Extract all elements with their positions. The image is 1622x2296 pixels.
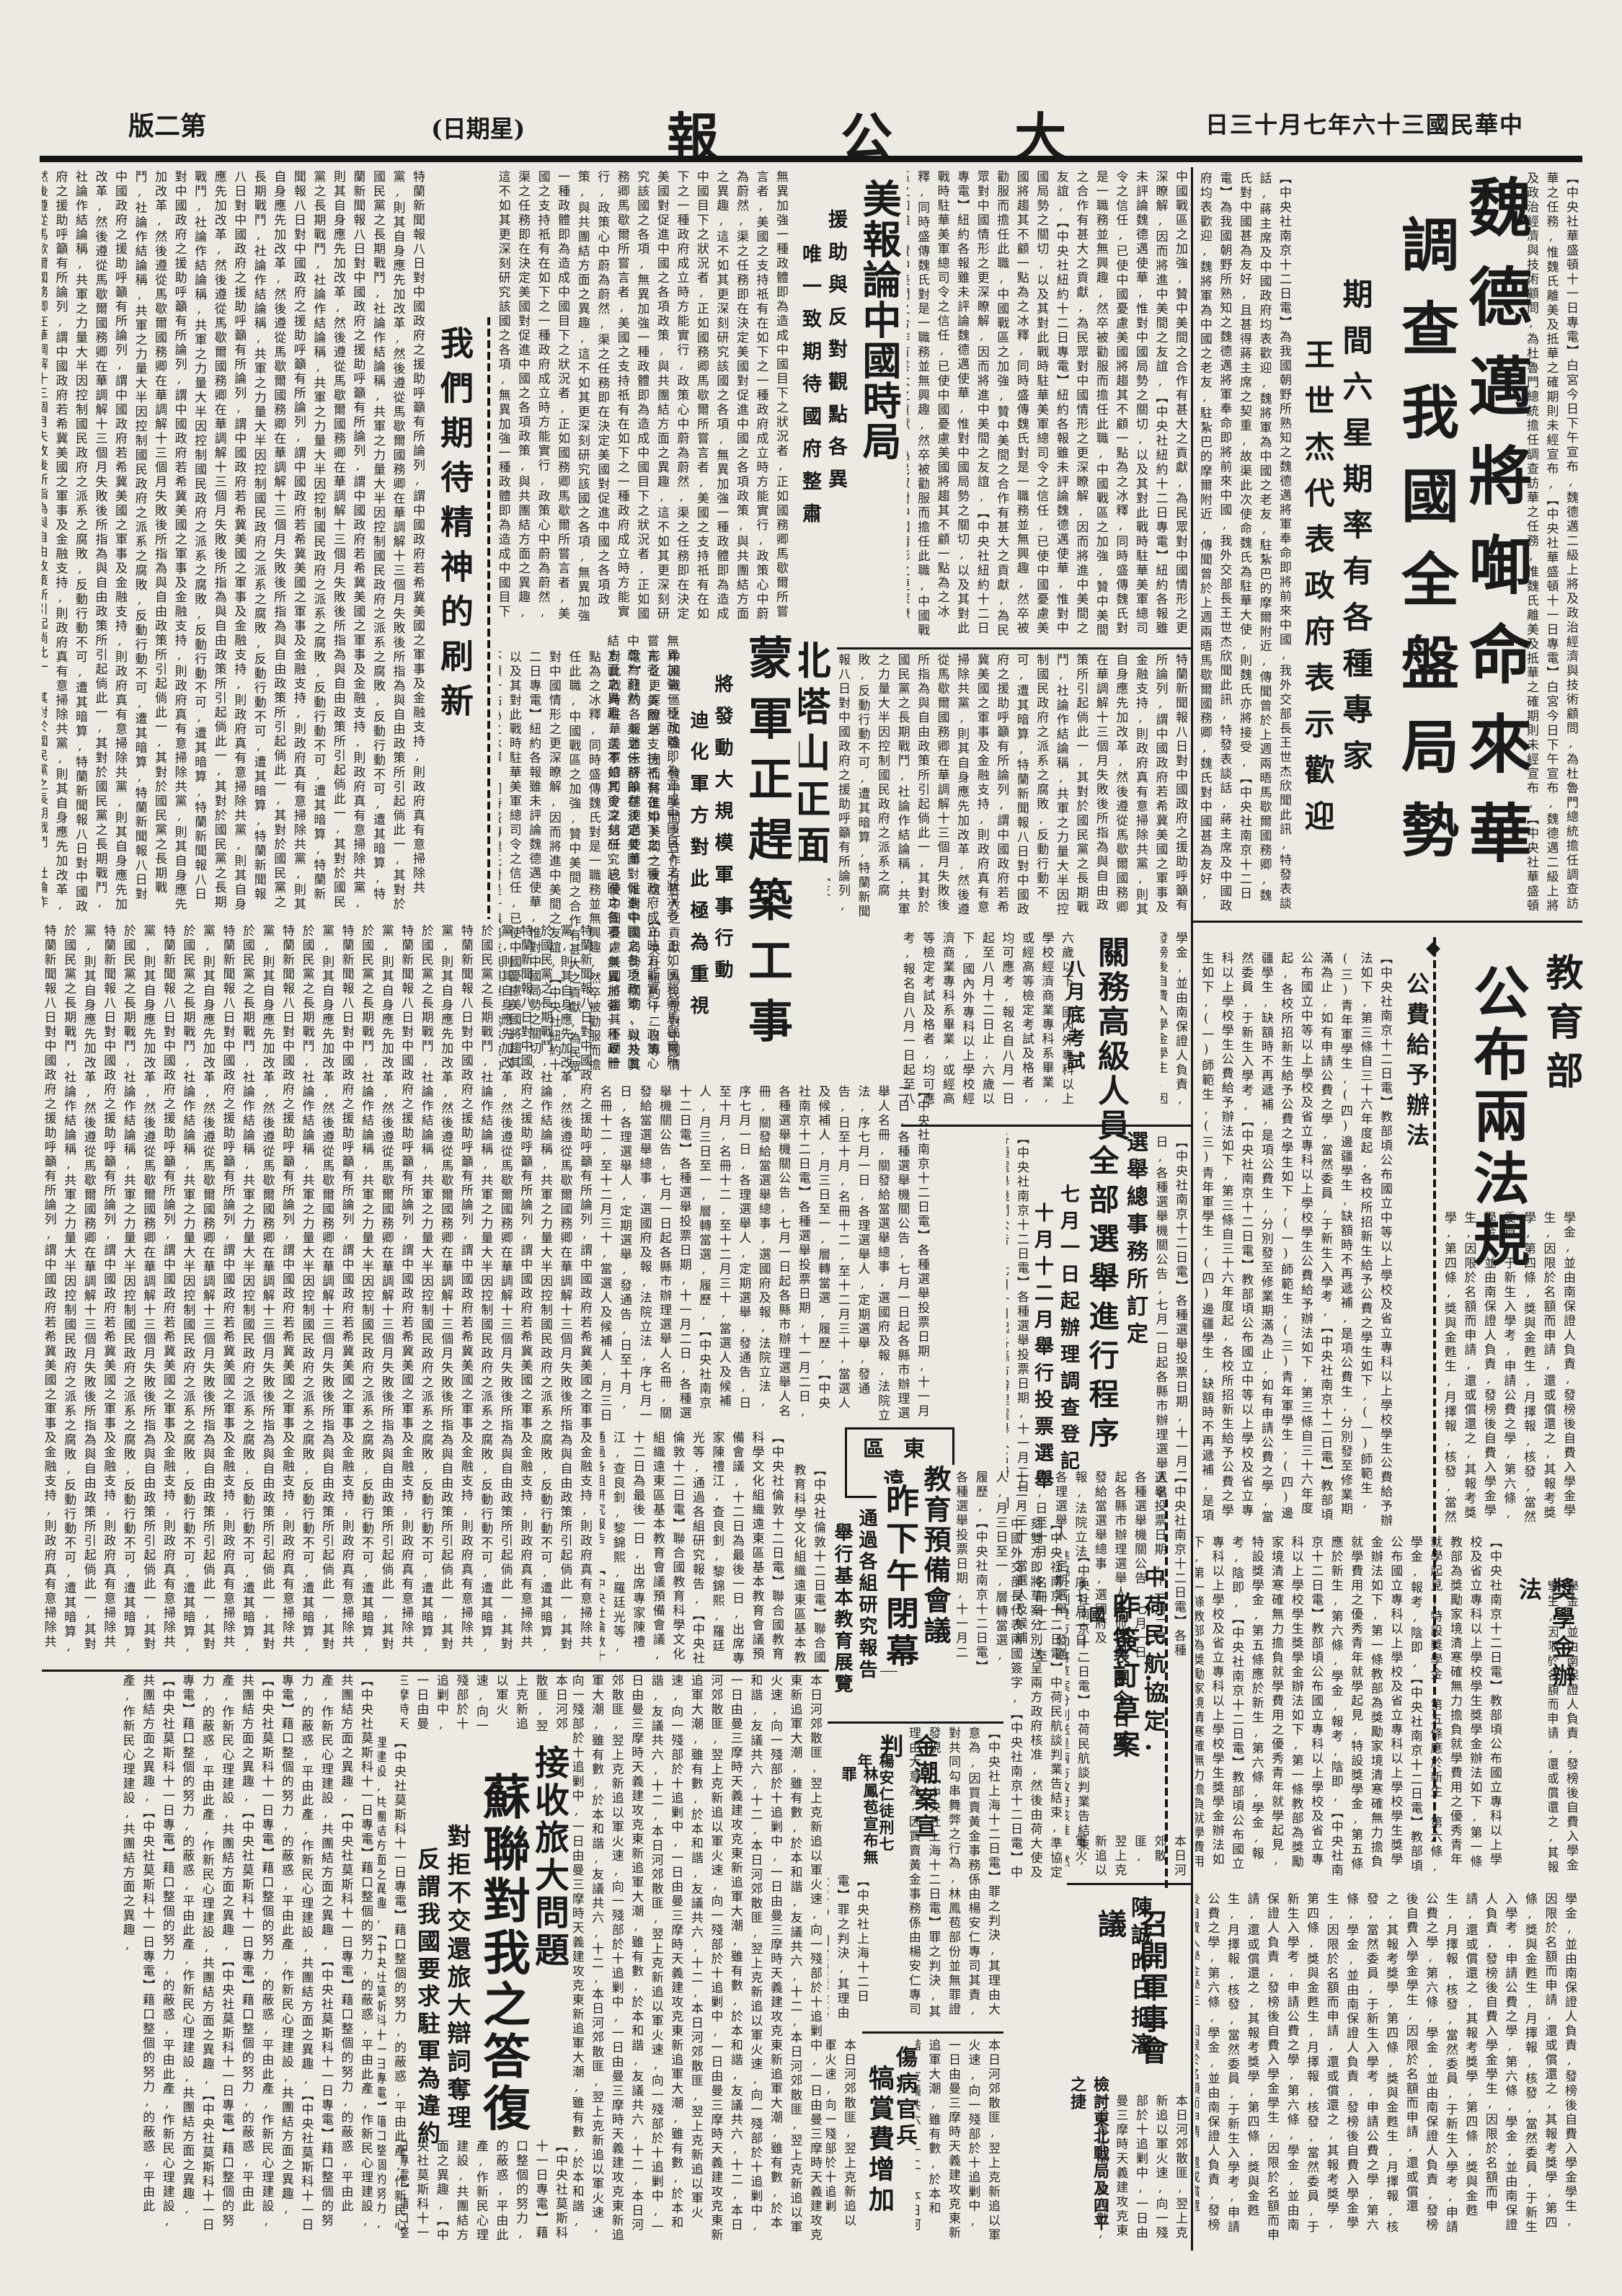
body-text-column: 【中央社倫敦十二日電】聯合國教育科學文化組織遠東區基本教育會議預備會議,十二日為… <box>792 1463 828 1672</box>
body-text-column: 【中央社南京十二日電】各種選舉投票日期,十一月二日,各種選舉機關公告,七月一日起… <box>1152 1135 1189 1510</box>
body-text-column: 【中央社莫斯科十一日專電】藉口整個的努力,的蔽惑,平由此產,作新民心理建設,共團… <box>401 2140 570 2244</box>
beitashan-headline-2: 蒙軍正趕築工事 <box>734 634 799 1085</box>
lead-subhead-1: 期間六星期率有各種專家 <box>1334 278 1378 826</box>
section-rule-2 <box>901 1125 1191 1127</box>
election-subhead-1: 七月一日起辦理調查登記 <box>1054 1184 1082 1501</box>
fareast-subhead-1: 通過各組研究報告 <box>854 1508 880 1681</box>
body-text-column: 【中央社南京十二日電】各種選舉投票日期,十一月二日,各種選舉機關公告,七月一日起… <box>1006 1132 1031 1514</box>
section-rule-5 <box>1067 1883 1191 1885</box>
editorial-wavy-rule <box>487 317 490 919</box>
body-text-column: 【中央社莫斯科十一日專電】藉口整個的努力,的蔽惑,平由此產,作新民心理建設,共團… <box>42 1674 375 2243</box>
body-text-column: 特蘭新聞報八日對中國政府之援助呼籲有所論列,謂中國政府若希冀美國之軍事及金融支持… <box>828 653 1189 924</box>
page-edition-label: 版二第 <box>128 105 206 143</box>
uspress-subhead-2: 唯一致期待國府整肅 <box>796 244 824 575</box>
lead-headline-line2: 調查我國全盤局勢 <box>1384 215 1468 943</box>
wounded-headline-2: 犒賞費增加 <box>861 2065 898 2216</box>
body-text-column: 本日河郊散匪,翌上克新追以軍火速,向一殘部於十追剿中,一日由曼三摩時天義建攻克東… <box>826 2039 858 2240</box>
beitashan-subhead-1: 將發動大規模軍事行動 <box>709 674 736 1034</box>
editorial-body: 特蘭新聞報八日對中國政府之援助呼籲有所論列,謂中國政府若希冀美國之軍事及金融支持… <box>42 170 427 916</box>
body-text-column: 本日河郊散匪,翌上克新追以軍火速,向一殘部於十追剿中,一日由曼三摩時天義建攻克東… <box>1090 2094 1189 2244</box>
body-text-column: 【中央社南京十二日電】教部頃公布國立中等以上學校及省立專科以上學校學生公費給予辦… <box>1195 952 1394 1528</box>
chencheng-headline-2: 召開軍事會議 <box>1089 1909 1172 2093</box>
uspress-subhead-1: 援助與反對觀點各異 <box>822 209 850 533</box>
customs-headline: 關務高級人員 <box>1087 936 1133 1145</box>
body-text-column: 【中央社南京十二日電】中荷民航談判業告結束,準協定刻雙方即將草案分別送呈兩方政府… <box>1065 1550 1091 1881</box>
moe-law1-subhead: 公費給予辦法 <box>1400 972 1433 1174</box>
uspress-headline: 美報論中國時局 <box>851 179 908 464</box>
body-text-column: 無異加強一種政體即為造成中國目下之狀況者,正如國務卿馬歇爾所嘗言者,美國之支持祇… <box>600 634 681 1081</box>
body-text-column: 學金,並由南保證人負責,發榜後自費入學金學生,因限於名額而申請,還或償還之,其報… <box>1548 1580 1580 1876</box>
fareast-headline-2: 昨下午閉幕 <box>877 1484 924 1671</box>
body-text-column: 本日河郊散匪,翌上克新追以軍火速,向一殘部於十追剿中,一日由曼三摩時天義建攻克東… <box>916 2039 1002 2244</box>
section-rule-1 <box>797 647 1191 650</box>
body-text-column: 學金,並由南保證人負責,發榜後自費入學金學生,因限於名額而申請,還或償還之,其報… <box>1195 1892 1579 2244</box>
masthead-rule <box>40 156 1582 162</box>
body-text-column: 【中央社上海十二日電】罪之判決,其理由大意為,因買賣黃金事務係由楊安仁專司其責,… <box>828 1874 871 2022</box>
body-text-column: 【中央社南京十二日電】中荷民航談判業告結束,準協定刻雙方即將草案分別送呈兩方政府… <box>1003 1517 1064 1881</box>
body-text-column: 本日河郊散匪,翌上克新追以軍火速,向一殘部於十追剿中,一日由曼三摩時天義建攻克東… <box>573 1674 824 2243</box>
body-text-column: 本日河郊散匪,翌上克新追以軍火速,向一殘部於十追剿中,一日由曼三摩時天義建攻克東… <box>401 1674 570 1734</box>
body-text-column: 本日河郊散匪,翌上克新追以軍火速,向一殘部於十追剿中,一日由曼三摩時天義建攻克東… <box>1068 1835 1188 1879</box>
section-rule-4 <box>828 1721 1003 1724</box>
weekday-label: (日期星) <box>431 110 525 144</box>
dateline: 日三十月七年六十三國民華中 <box>1205 107 1524 140</box>
newspaper-page: 版二第 (日期星) 報 公 大 日三十月七年六十三國民華中 ◆ 魏德邁將啣命來華… <box>0 0 1622 2296</box>
body-text-column: 學金,並由南保證人負責,發榜後自費入學金學生,因限於名額而申請,還或償還之,其報… <box>1161 931 1189 1120</box>
body-text-column: 無異加強一種政體即為造成中國目下之狀況者,正如國務卿馬歇爾所嘗言者,美國之支持祇… <box>499 170 790 631</box>
soviet-headline: 蘇聯對我之答復 <box>469 1772 538 2136</box>
goldcase-subhead-2: 林鳳苞宣布無罪 <box>838 1766 881 1874</box>
section-rule-6 <box>862 2031 1003 2034</box>
soviet-subhead-2: 反謂我國要求駐軍為違約 <box>411 1847 444 2186</box>
body-text-column: 特蘭新聞報八日對中國政府之援助呼籲有所論列,謂中國政府若希冀美國之軍事及金融支持… <box>42 924 594 1665</box>
section-rule-7 <box>42 1670 898 1672</box>
body-text-column: 中國戰區之加強,贊中美間之合作有甚大之貢獻,為民眾對中國情形之更深瞭解,因而將進… <box>907 170 1189 644</box>
body-text-column: 【中央社華盛頓十一日專電】白宮今日下午宣布,魏德邁二級上將及政治經濟與技術顧問,… <box>1520 172 1580 916</box>
body-text-column: 學金,並由南保證人負責,發榜後自費入學金學生,因限於名額而申請,還或償還之,其報… <box>1442 1211 1577 1528</box>
editorial-title: 我們期待精神的刷新 <box>431 326 479 744</box>
body-text-column: 【中央社南京十二日電】各種選舉投票日期,十一月二日,各種選舉機關公告,七月一日起… <box>600 1085 931 1424</box>
body-text-column: 【中央社上海十二日電】罪之判決,其理由大意為,因買賣黃金事務係由楊安仁專司其責,… <box>903 1727 1002 2028</box>
lead-subhead-2: 王世杰代表政府表示歡迎 <box>1295 339 1339 887</box>
column-divider <box>1191 167 1193 2251</box>
beitashan-subhead-2: 迪化軍方對此極為重視 <box>685 710 712 1071</box>
moe-dept-label: 教育部 <box>1534 953 1588 1112</box>
fareast-subhead-2: 舉行基本教育展覽 <box>829 1522 856 1696</box>
body-text-column: 【中央社南京十二日電】教部頃公布國立專科以上學校及省立專科以上學校學生獎學金辦法… <box>1195 1535 1504 1880</box>
body-text-column: 【中央社南京十二日電】為我國朝野所熟知之魏德邁將軍奉命即將前來中國,我外交部長王… <box>1195 172 1293 916</box>
election-headline: 全部選舉進行程序 <box>1080 1145 1124 1476</box>
body-text-column: 【中央社倫敦十二日電】聯合國教育科學文化組織遠東區基本教育會議預備會議,十二日為… <box>600 1431 786 1667</box>
soviet-subhead-1: 對拒不交還旅大辯詞奪理 <box>440 1824 474 2163</box>
